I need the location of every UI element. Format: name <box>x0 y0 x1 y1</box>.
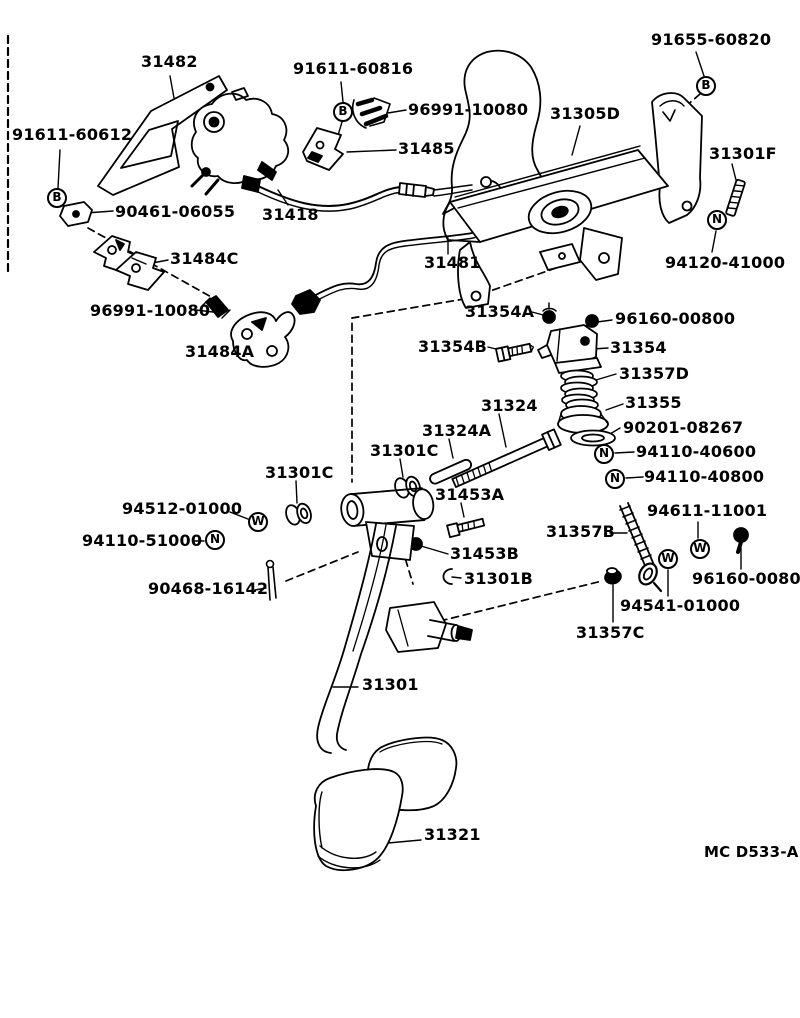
part-label: 90201-08267 <box>623 419 743 436</box>
part-label: 91611-60612 <box>12 126 132 143</box>
part-31301B-clip <box>443 569 452 584</box>
part-label: 91655-60820 <box>651 31 771 48</box>
part-31453A-bolt <box>447 517 485 537</box>
part-label: 31484A <box>185 343 254 360</box>
fastener-symbol-n: N <box>594 444 614 464</box>
part-label: 31305D <box>550 105 620 122</box>
part-label: 31418 <box>262 206 319 223</box>
part-label: 31354A <box>465 303 534 320</box>
part-label: 31482 <box>141 53 198 70</box>
part-label: 31324A <box>422 422 491 439</box>
part-label: 31301C <box>370 442 439 459</box>
fastener-symbol-n: N <box>205 530 225 550</box>
part-label: 94110-40800 <box>644 468 764 485</box>
part-label: 31453B <box>450 545 519 562</box>
damper-stack <box>538 303 615 446</box>
part-label: 31484C <box>170 250 239 267</box>
part-label: 94110-40600 <box>636 443 756 460</box>
parts-diagram-canvas: 3148291611-6061290461-0605531484C96991-1… <box>0 0 800 1018</box>
part-label: 90461-06055 <box>115 203 235 220</box>
part-31301C-bushing-left <box>284 500 314 528</box>
part-label: 31453A <box>435 486 504 503</box>
part-96160-bolt-lower <box>734 528 748 552</box>
part-label: 31321 <box>424 826 481 843</box>
part-31354B-bolt <box>496 341 535 361</box>
fastener-symbol-w: W <box>690 539 710 559</box>
fastener-symbol-w: W <box>248 512 268 532</box>
part-90461-bracket <box>60 202 92 226</box>
part-label: 94541-01000 <box>620 597 740 614</box>
part-31301F-stud <box>726 179 746 216</box>
part-label: 96160-00800 <box>615 310 735 327</box>
fastener-symbol-n: N <box>707 210 727 230</box>
diagram-footer-code: MC D533-A <box>704 843 799 861</box>
part-label: 96991-10080 <box>90 302 210 319</box>
fastener-symbol-b: B <box>47 188 67 208</box>
part-label: 31357C <box>576 624 645 641</box>
part-31357C-nut <box>604 568 623 585</box>
part-label: 31301B <box>464 570 533 587</box>
fastener-symbol-b: B <box>696 76 716 96</box>
part-label: 94120-41000 <box>665 254 785 271</box>
part-label: 96991-10080 <box>408 101 528 118</box>
fastener-symbol-n: N <box>605 469 625 489</box>
part-31484C-brackets <box>94 236 164 290</box>
part-label: 31481 <box>424 254 481 271</box>
part-label: 96160-00800 <box>692 570 800 587</box>
part-label: 94512-01000 <box>122 500 242 517</box>
part-label: 91611-60816 <box>293 60 413 77</box>
part-label: 31301F <box>709 145 777 162</box>
fastener-symbol-w: W <box>658 549 678 569</box>
part-label: 31301 <box>362 676 419 693</box>
part-31321-pad <box>314 769 403 870</box>
part-label: 31354 <box>610 339 667 356</box>
part-label: 90468-16142 <box>148 580 268 597</box>
part-label: 31357D <box>619 365 689 382</box>
part-label: 31357B <box>546 523 615 540</box>
fastener-symbol-b: B <box>333 102 353 122</box>
part-label: 31354B <box>418 338 487 355</box>
part-label: 31355 <box>625 394 682 411</box>
part-label: 94110-51000 <box>82 532 202 549</box>
part-label: 31324 <box>481 397 538 414</box>
part-label: 31485 <box>398 140 455 157</box>
part-label: 31301C <box>265 464 334 481</box>
part-label: 94611-11001 <box>647 502 767 519</box>
